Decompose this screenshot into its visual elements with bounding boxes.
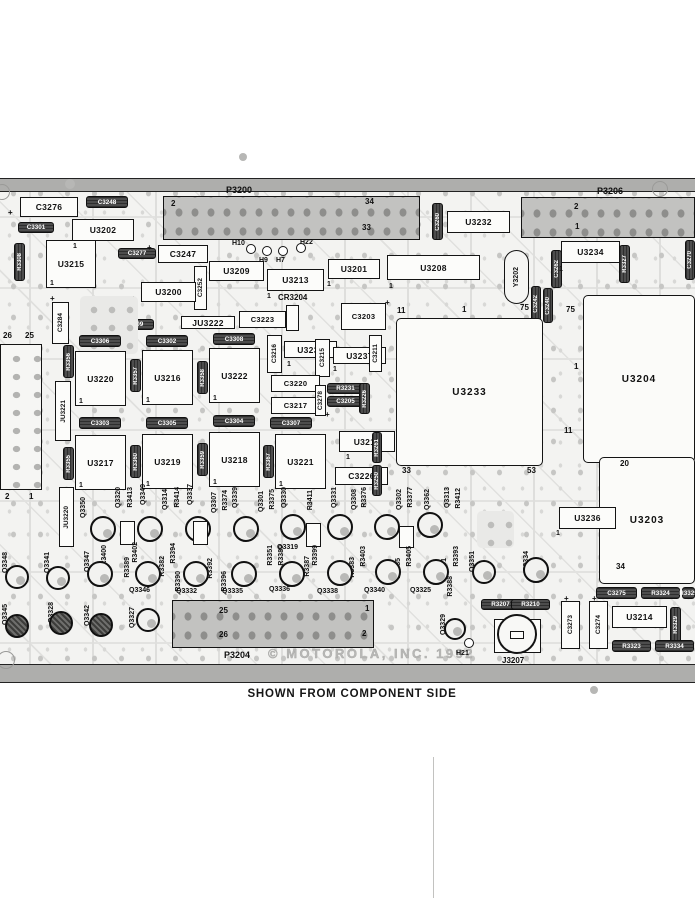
refdes-q3320: Q3320 xyxy=(115,487,122,508)
component-u3214: U3214 xyxy=(612,606,667,628)
component-label-u3208: U3208 xyxy=(420,263,447,273)
component-label-c3276: C3276 xyxy=(36,202,63,212)
component-c3220: C3220 xyxy=(271,375,320,392)
component-label-u3203: U3203 xyxy=(630,515,664,526)
component-label-r3207: R3207 xyxy=(491,601,510,608)
component-c3303: C3303 xyxy=(79,417,121,429)
component-r3359: R3359 xyxy=(197,443,208,476)
refdes-q3338: Q3338 xyxy=(317,588,338,595)
transistor-pad-dot xyxy=(292,574,301,583)
transistor-135 xyxy=(231,561,257,587)
component-c3273: C3273 xyxy=(561,601,580,649)
component-c3301: C3301 xyxy=(18,222,54,233)
component-label-c3307: C3307 xyxy=(282,420,301,427)
component-label-u3236: U3236 xyxy=(574,513,601,523)
component-u3221: U32211 xyxy=(275,434,326,489)
text-1-28: 1 xyxy=(29,492,33,501)
component-label-c3303: C3303 xyxy=(91,420,110,427)
component-c3216: C3216 xyxy=(267,335,282,373)
transistor-137 xyxy=(327,560,353,586)
text-p3204-2: P3204 xyxy=(224,650,250,660)
transistor-132 xyxy=(87,561,113,587)
refdes-q3339: Q3339 xyxy=(232,487,239,508)
component-u3201: U3201 xyxy=(328,259,380,279)
transistor-pad-dot xyxy=(340,573,349,582)
component-label-c3223: C3223 xyxy=(251,315,275,324)
component-u3204: U3204 xyxy=(583,295,695,463)
component-label-r3324: R3324 xyxy=(651,590,670,597)
component-label-u3233: U3233 xyxy=(452,387,486,398)
component-u3213: U3213 xyxy=(267,269,324,291)
component-r3334: R3334 xyxy=(655,640,694,652)
text-h9-10: H9 xyxy=(259,257,268,264)
refdes-q3301: Q3301 xyxy=(258,491,265,512)
component-c3215: C3215 xyxy=(315,339,330,377)
text-34-24: 34 xyxy=(616,562,625,571)
component-label-c3274: C3274 xyxy=(595,615,602,634)
refdes-r3411: R3411 xyxy=(307,490,314,510)
component-u3233: U3233 xyxy=(396,318,543,466)
component-label-c3304: C3304 xyxy=(225,418,244,425)
component-label-u3204: U3204 xyxy=(622,374,656,385)
component-label-u3217: U3217 xyxy=(87,458,114,468)
transistor-pad-dot xyxy=(536,570,545,579)
component-u3202: U3202 xyxy=(72,219,134,241)
mounting-hole-172 xyxy=(246,244,256,254)
component-label-r3210: R3210 xyxy=(521,601,540,608)
text--42: + xyxy=(8,208,13,217)
component-u3219: U32191 xyxy=(142,434,193,489)
component-label-u3201: U3201 xyxy=(341,264,368,274)
text-33-6: 33 xyxy=(362,223,371,232)
component-c3223: C3223 xyxy=(239,311,286,328)
component-label-c3277: C3277 xyxy=(128,250,147,257)
text-11-17: 11 xyxy=(397,306,405,315)
transistor-pad-dot xyxy=(483,571,492,580)
refdes-r3351: R3351 xyxy=(267,545,274,566)
component-label-r3329: R3329 xyxy=(673,616,679,634)
component-label-c3252: C3252 xyxy=(197,278,204,297)
transistor-pad-dot xyxy=(430,525,439,534)
component-u3236: U3236 xyxy=(559,507,616,529)
component-label-c3217: C3217 xyxy=(284,401,308,410)
connector-p3204 xyxy=(172,600,374,648)
component-y3202: Y3202 xyxy=(504,250,529,304)
component-r3358: R3358 xyxy=(197,361,208,394)
text-75-15: 75 xyxy=(520,303,529,312)
text-2-27: 2 xyxy=(5,492,9,501)
text-1-35: 1 xyxy=(327,281,331,288)
transistor-pad-dot xyxy=(150,529,159,538)
refdes-q3307: Q3307 xyxy=(211,492,218,513)
transistor-pad-dot xyxy=(340,527,349,536)
component-c3247: C3247 xyxy=(158,245,208,263)
component-label-c3306: C3306 xyxy=(91,338,110,345)
mounting-hole-174 xyxy=(278,246,288,256)
component-label-c3242: C3242 xyxy=(533,295,539,313)
transistor-101 xyxy=(233,516,259,542)
component-label-u3215: U3215 xyxy=(58,259,85,269)
transistor-104 xyxy=(374,514,400,540)
component-label-c3205: C3205 xyxy=(336,398,355,405)
component-label-c3301: C3301 xyxy=(27,224,46,231)
component-c3270: C3270 xyxy=(685,240,695,280)
copyright-text: © MOTOROLA, INC. 1992 xyxy=(268,646,475,661)
component-u3212: U3212 xyxy=(339,431,395,452)
component-r3308: R3308 xyxy=(14,243,25,281)
refdes-q3362: Q3362 xyxy=(424,489,431,510)
component-u3200: U3200 xyxy=(141,282,196,302)
component-label-r3359: R3359 xyxy=(200,451,206,469)
text-1-37: 1 xyxy=(559,266,563,273)
text-1-31: 1 xyxy=(365,604,369,613)
component-c3203: C3203 xyxy=(341,303,386,330)
component-r3327: R3327 xyxy=(619,245,630,283)
component-u3215: U32151 xyxy=(46,240,96,288)
board-hole-186 xyxy=(652,181,668,197)
text-p3200-0: P3200 xyxy=(226,185,252,195)
refdes-r3394: R3394 xyxy=(170,543,177,564)
component-r3355: R3355 xyxy=(63,447,74,480)
transistor-161 xyxy=(136,608,160,632)
via-dot-190 xyxy=(590,686,598,694)
component-c3242: C3242 xyxy=(531,286,541,321)
solder-pad-164 xyxy=(477,511,514,548)
component-label-u3213: U3213 xyxy=(282,275,309,285)
pin1-mark-u3222: 1 xyxy=(213,395,217,402)
refdes-q3335: Q3335 xyxy=(222,588,243,595)
refdes-q3313: Q3313 xyxy=(444,487,451,508)
transistor-pad-dot xyxy=(16,576,25,585)
component-c3275: C3275 xyxy=(596,587,637,599)
refdes-q3337: Q3337 xyxy=(187,484,194,505)
component-r3250: R3250 xyxy=(372,465,382,496)
transistor-105 xyxy=(417,512,443,538)
text-2-4: 2 xyxy=(171,199,175,208)
transistor-103 xyxy=(327,514,353,540)
component-label-u3220: U3220 xyxy=(87,374,114,384)
component-label-r3308: R3308 xyxy=(17,253,23,271)
component-u3208: U3208 xyxy=(387,255,480,280)
text-h7-11: H7 xyxy=(276,257,285,264)
part-cr3204-body xyxy=(286,305,299,331)
text-p3206-1: P3206 xyxy=(597,186,623,196)
transistor-140 xyxy=(472,560,496,584)
refdes-q3319: Q3319 xyxy=(277,544,298,551)
refdes-r3402: R3402 xyxy=(132,542,139,563)
text-34-5: 34 xyxy=(365,197,374,206)
component-label-c3226: C3226 xyxy=(348,471,375,481)
transistor-pad-dot xyxy=(148,574,157,583)
component-c3211: C3211 xyxy=(369,335,382,372)
pcb-layout-page: © MOTOROLA, INC. 1992 SHOWN FROM COMPONE… xyxy=(0,0,695,898)
transistor-133 xyxy=(135,561,161,587)
transistor-pad-dot xyxy=(103,529,112,538)
component-r3367: R3367 xyxy=(263,445,274,478)
component-label-r3367: R3367 xyxy=(266,453,272,471)
component-label-ju3222: JU3222 xyxy=(192,318,224,328)
text-53-20: 53 xyxy=(527,466,536,475)
refdes-r3413: R3413 xyxy=(127,487,134,508)
component-u3220: U32201 xyxy=(75,351,126,406)
part-sot-pad-3 xyxy=(306,523,321,547)
component-r3226: R3226 xyxy=(359,383,370,414)
text-1-38: 1 xyxy=(287,361,291,368)
transistor-pad-dot xyxy=(436,572,445,581)
via-dot-189 xyxy=(239,153,247,161)
component-ju3222: JU3222 xyxy=(181,316,235,329)
transistor-pad-dot xyxy=(100,574,109,583)
transistor-159 xyxy=(49,611,73,635)
page-fold-line xyxy=(433,757,434,898)
text-26-25: 26 xyxy=(3,331,12,340)
text-2-7: 2 xyxy=(574,202,578,211)
text-h22-12: H22 xyxy=(300,239,313,246)
component-r3210: R3210 xyxy=(511,599,550,610)
transistor-pad-dot xyxy=(244,574,253,583)
component-r3360: R3360 xyxy=(130,445,141,478)
diagram-caption: SHOWN FROM COMPONENT SIDE xyxy=(247,688,456,700)
text-h21-13: H21 xyxy=(456,650,469,657)
refdes-q3327: Q3327 xyxy=(129,607,136,628)
transistor-156 xyxy=(5,565,29,589)
transistor-102 xyxy=(280,514,306,540)
refdes-q3325: Q3325 xyxy=(410,587,431,594)
component-c3302: C3302 xyxy=(146,335,188,347)
via-dot-188 xyxy=(65,179,75,189)
refdes-q3330: Q3330 xyxy=(281,487,288,508)
component-u3232: U3232 xyxy=(447,211,510,233)
refdes-q3314: Q3314 xyxy=(162,489,169,510)
text-25-26: 25 xyxy=(25,331,34,340)
pin1-mark-u3217: 1 xyxy=(79,482,83,489)
component-label-y3202: Y3202 xyxy=(513,267,520,287)
component-label-c3220: C3220 xyxy=(284,379,308,388)
component-label-c3211: C3211 xyxy=(372,344,379,363)
transistor-139 xyxy=(423,559,449,585)
component-label-r3325: R3325 xyxy=(679,590,695,597)
refdes-r3374: R3374 xyxy=(222,490,229,511)
component-c3217: C3217 xyxy=(271,397,320,414)
refdes-r3377: R3377 xyxy=(407,487,414,508)
transistor-pad-dot xyxy=(453,627,462,636)
component-label-c3284: C3284 xyxy=(57,313,64,332)
component-label-c3240: C3240 xyxy=(545,297,551,315)
component-ju3220: JU3220 xyxy=(59,487,74,547)
text-1-36: 1 xyxy=(389,283,393,290)
refdes-r3375: R3375 xyxy=(269,489,276,510)
component-label-r3358: R3358 xyxy=(200,369,206,387)
component-label-u3216: U3216 xyxy=(154,373,181,383)
refdes-q3349: Q3349 xyxy=(140,484,147,505)
text--43: + xyxy=(147,243,152,252)
transistor-99 xyxy=(137,516,163,542)
refdes-q3332: Q3332 xyxy=(176,588,197,595)
component-label-r3250: R3250 xyxy=(374,472,380,490)
refdes-r3412: R3412 xyxy=(455,488,462,509)
text--44: + xyxy=(385,298,390,307)
component-label-u3214: U3214 xyxy=(626,612,653,622)
mounting-hole-173 xyxy=(262,246,272,256)
text-1-34: 1 xyxy=(267,293,271,300)
component-label-r3323: R3323 xyxy=(622,643,641,650)
component-r3356: R3356 xyxy=(63,345,74,378)
component-label-c3278: C3278 xyxy=(317,391,324,410)
component-r3261: R3261 xyxy=(372,432,382,463)
component-label-r3355: R3355 xyxy=(66,455,72,473)
refdes-q3302: Q3302 xyxy=(396,489,403,510)
component-label-c3273: C3273 xyxy=(567,615,574,634)
component-r3323: R3323 xyxy=(612,640,651,652)
refdes-r3376: R3376 xyxy=(361,487,368,508)
component-r3329: R3329 xyxy=(670,607,681,643)
transistor-158 xyxy=(5,614,29,638)
component-label-c3308: C3308 xyxy=(225,336,244,343)
component-label-c3305: C3305 xyxy=(158,420,177,427)
connector-p3206 xyxy=(521,197,695,238)
transistor-pad-dot xyxy=(293,527,302,536)
component-label-c3248: C3248 xyxy=(98,199,117,206)
component-label-r3261: R3261 xyxy=(374,439,380,457)
connector-p3200 xyxy=(163,196,420,240)
text-h10-9: H10 xyxy=(232,240,245,247)
refdes-r3389: R3389 xyxy=(124,557,131,578)
refdes-q3350: Q3350 xyxy=(80,497,87,518)
component-ju3221: JU3221 xyxy=(55,381,71,441)
transistor-141 xyxy=(523,557,549,583)
text-1-40: 1 xyxy=(346,454,350,461)
component-r3324: R3324 xyxy=(641,587,680,599)
mounting-hole-171 xyxy=(464,638,474,648)
transistor-pad-dot xyxy=(387,527,396,536)
text-j3207-14: J3207 xyxy=(502,656,524,665)
part-j3207-center xyxy=(510,631,524,639)
refdes-q3336: Q3336 xyxy=(269,586,290,593)
transistor-160 xyxy=(89,613,113,637)
refdes-r3388: R3388 xyxy=(447,576,454,597)
text--48: + xyxy=(592,594,597,603)
component-label-r3327: R3327 xyxy=(622,255,628,273)
refdes-r3387: R3387 xyxy=(304,556,311,577)
transistor-134 xyxy=(183,561,209,587)
component-label-u3209: U3209 xyxy=(223,266,250,276)
text-20-23: 20 xyxy=(620,459,629,468)
component-c3260: C3260 xyxy=(432,203,443,240)
component-label-ju3221: JU3221 xyxy=(60,400,67,423)
component-label-r3360: R3360 xyxy=(133,453,139,471)
transistor-pad-dot xyxy=(147,619,156,628)
refdes-r3399: R3399 xyxy=(312,545,319,566)
component-r3325: R3325 xyxy=(682,587,695,599)
component-c3308: C3308 xyxy=(213,333,255,345)
component-c3276: C3276 xyxy=(20,197,78,217)
component-label-c3275: C3275 xyxy=(607,590,626,597)
refdes-r3414: R3414 xyxy=(174,487,181,508)
component-c3304: C3304 xyxy=(213,415,255,427)
text--46: + xyxy=(325,410,330,419)
refdes-q3346: Q3346 xyxy=(129,587,150,594)
component-c3307: C3307 xyxy=(270,417,312,429)
transistor-pad-dot xyxy=(196,574,205,583)
transistor-98 xyxy=(90,516,116,542)
transistor-163 xyxy=(444,618,466,640)
pin1-mark-u3216: 1 xyxy=(146,397,150,404)
text--45: + xyxy=(50,294,55,303)
refdes-q3331: Q3331 xyxy=(331,487,338,508)
component-label-r3226: R3226 xyxy=(362,390,368,408)
transistor-138 xyxy=(375,559,401,585)
pin1-mark-u3218: 1 xyxy=(213,479,217,486)
transistor-pad-dot xyxy=(388,572,397,581)
component-r3357: R3357 xyxy=(130,359,141,392)
refdes-r3403: R3403 xyxy=(360,546,367,567)
component-label-u3200: U3200 xyxy=(155,287,182,297)
text-26-30: 26 xyxy=(219,630,228,639)
component-c3306: C3306 xyxy=(79,335,121,347)
board-top-edge xyxy=(0,178,695,192)
component-label-u3221: U3221 xyxy=(287,457,314,467)
text-1-8: 1 xyxy=(575,222,579,231)
pin1-mark-u3215: 1 xyxy=(50,280,54,287)
component-label-u3234: U3234 xyxy=(577,247,604,257)
connector-left-connector xyxy=(0,344,42,490)
refdes-r3405: R3405 xyxy=(406,546,413,567)
component-label-c3302: C3302 xyxy=(158,338,177,345)
text-2-32: 2 xyxy=(362,629,366,638)
text-11-22: 11 xyxy=(564,426,572,435)
component-c3248: C3248 xyxy=(86,196,128,208)
text-cr3204-3: CR3204 xyxy=(278,293,307,302)
board-bottom-edge xyxy=(0,664,695,683)
component-label-r3334: R3334 xyxy=(665,643,684,650)
component-u3234: U3234 xyxy=(561,241,620,263)
component-u3222: U32221 xyxy=(209,348,260,403)
component-c3284: C3284 xyxy=(52,302,69,344)
component-label-c3247: C3247 xyxy=(170,249,197,259)
transistor-157 xyxy=(46,566,70,590)
refdes-q3340: Q3340 xyxy=(364,587,385,594)
text-1-39: 1 xyxy=(333,366,337,373)
transistor-pad-dot xyxy=(57,577,66,586)
component-u3216: U32161 xyxy=(142,350,193,405)
component-u3218: U32181 xyxy=(209,432,260,487)
component-label-u3219: U3219 xyxy=(154,457,181,467)
component-label-ju3220: JU3220 xyxy=(63,506,70,529)
text-1-18: 1 xyxy=(462,305,466,314)
text-1-41: 1 xyxy=(556,530,560,537)
component-label-c3270: C3270 xyxy=(687,251,693,269)
text-75-16: 75 xyxy=(566,305,575,314)
component-label-r3356: R3356 xyxy=(66,353,72,371)
refdes-r3393: R3393 xyxy=(453,546,460,567)
text-33-19: 33 xyxy=(402,466,411,475)
part-sot-pad-2 xyxy=(193,521,208,545)
component-c3240: C3240 xyxy=(543,288,553,323)
text-1-21: 1 xyxy=(574,362,578,371)
component-label-c3216: C3216 xyxy=(271,344,278,363)
component-label-u3222: U3222 xyxy=(221,371,248,381)
component-label-c3260: C3260 xyxy=(435,213,441,231)
component-label-c3215: C3215 xyxy=(319,348,326,367)
component-label-u3202: U3202 xyxy=(90,225,117,235)
component-label-r3357: R3357 xyxy=(133,367,139,385)
component-u3217: U32171 xyxy=(75,435,126,490)
component-c3305: C3305 xyxy=(146,417,188,429)
transistor-136 xyxy=(279,561,305,587)
component-label-u3232: U3232 xyxy=(465,217,492,227)
transistor-pad-dot xyxy=(246,529,255,538)
pin1-mark-u3220: 1 xyxy=(79,398,83,405)
